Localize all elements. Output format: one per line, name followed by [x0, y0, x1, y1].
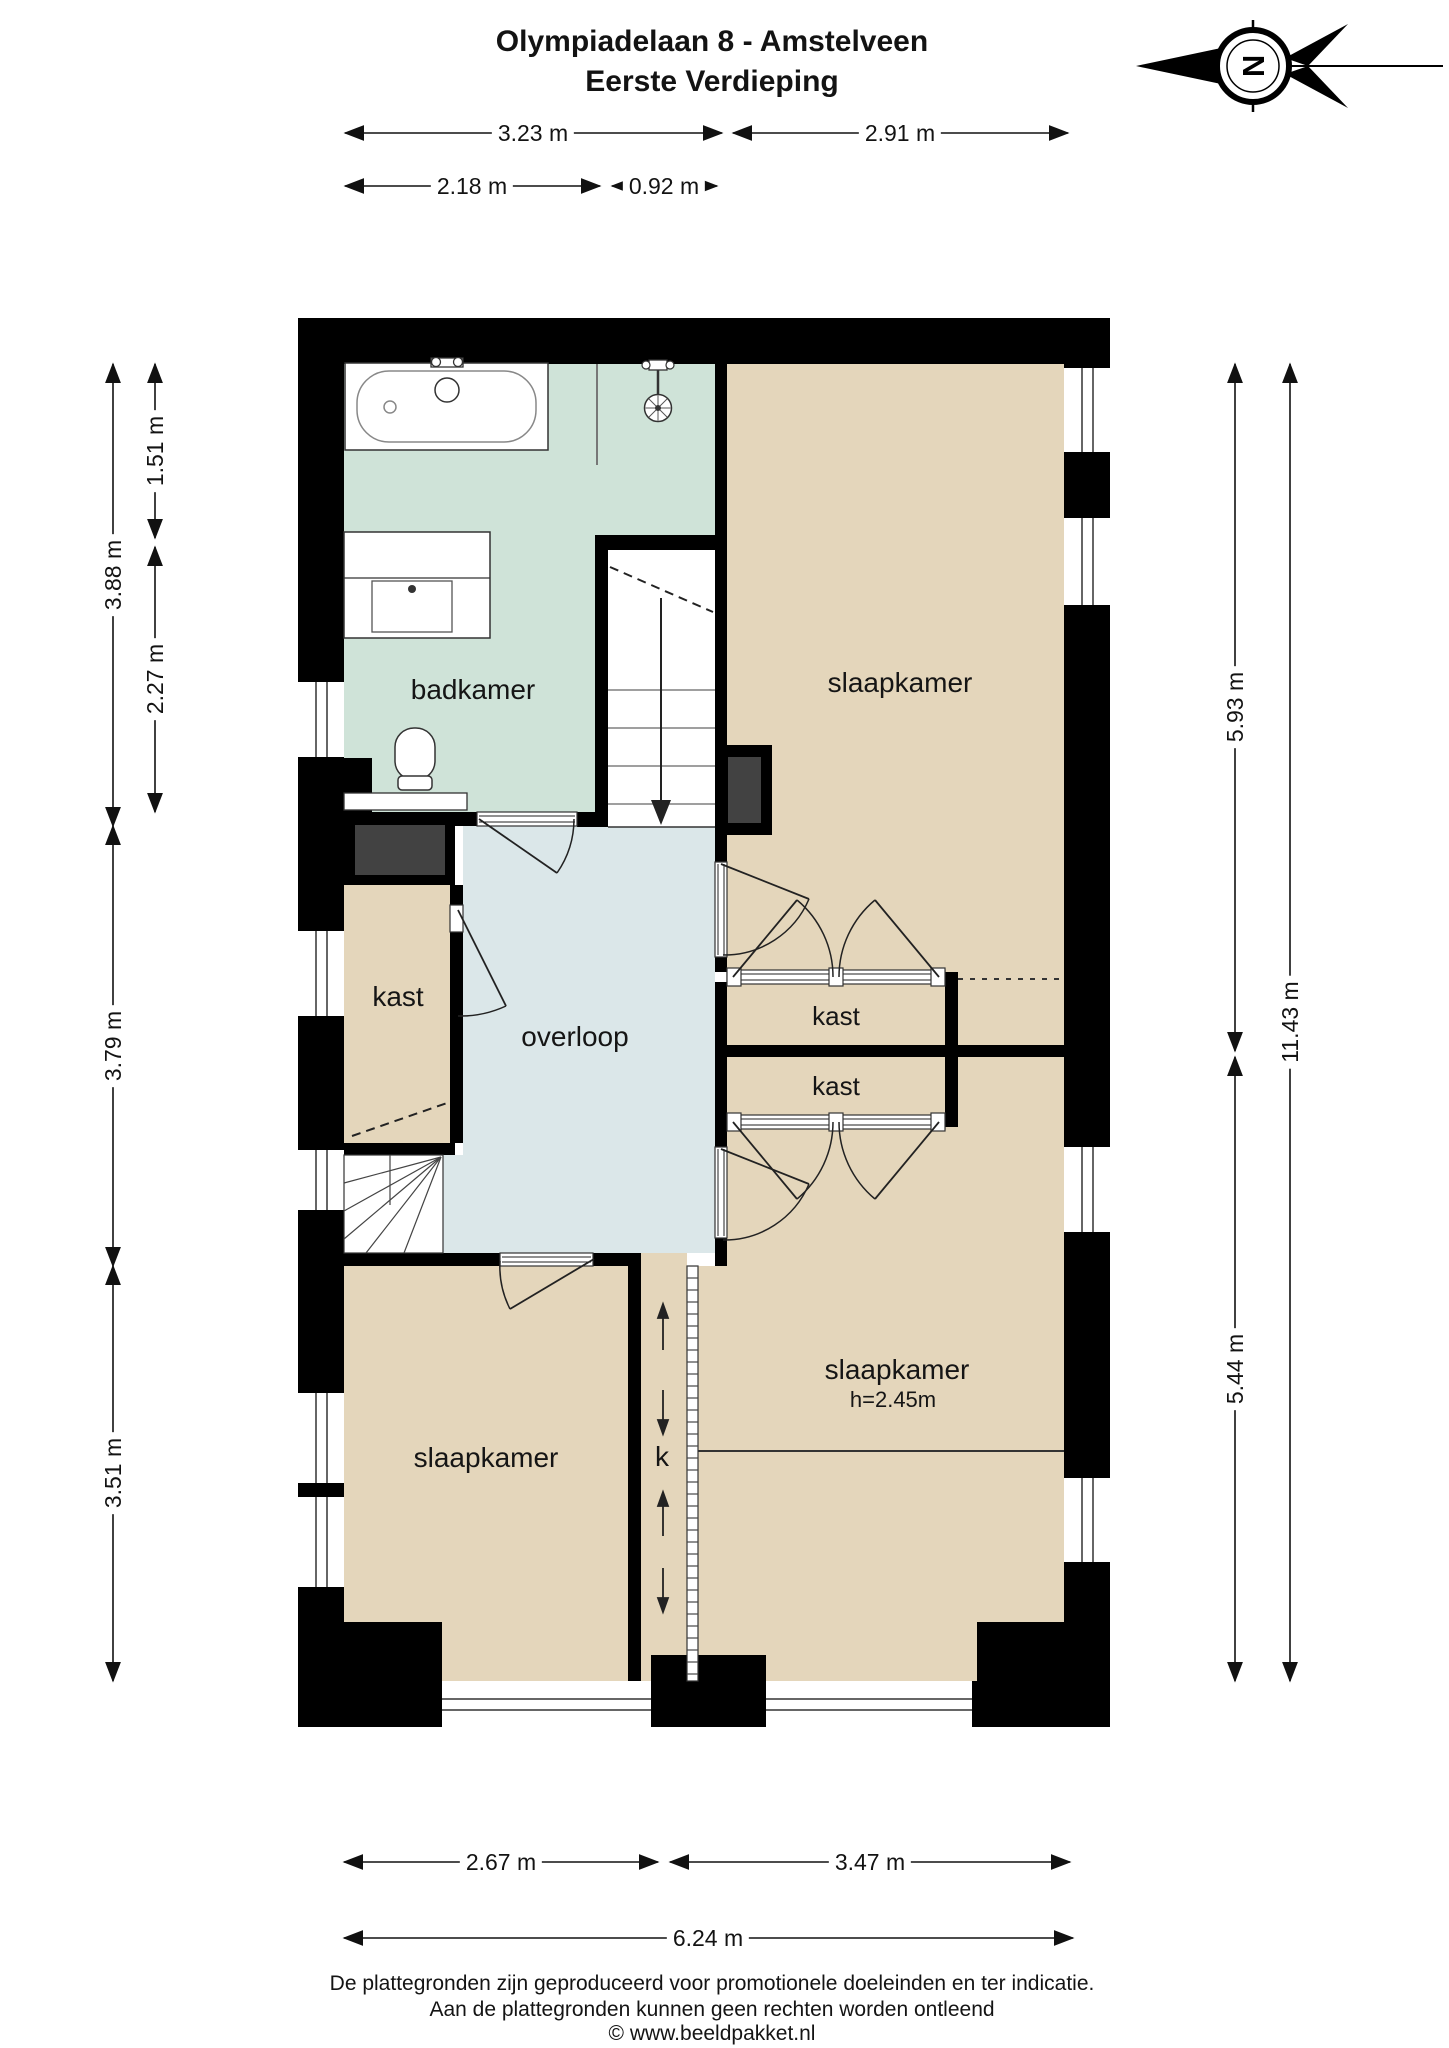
room-label-ceiling-height: h=2.45m — [850, 1389, 936, 1411]
bedroom-right-floor — [698, 1266, 1064, 1681]
room-label-slaapkamer-bottom-left: slaapkamer — [414, 1444, 559, 1472]
toilet — [395, 728, 435, 790]
window-left-3 — [298, 1150, 344, 1210]
floorplan-drawing — [0, 0, 1449, 2048]
room-label-slaapkamer-right: slaapkamer — [825, 1356, 970, 1384]
dim-left-outer-2: 3.79 m — [101, 1005, 125, 1087]
dim-left-outer-1: 3.88 m — [101, 534, 125, 616]
window-left-1 — [298, 682, 344, 757]
footer-copyright: © www.beeldpakket.nl — [609, 2022, 816, 2046]
window-left-4 — [298, 1393, 344, 1483]
page-subtitle: Eerste Verdieping — [585, 65, 838, 99]
dim-bottom-1: 2.67 m — [460, 1850, 542, 1874]
room-label-k-closet: k — [655, 1443, 669, 1471]
bedroom-bottom-left-floor — [344, 1266, 628, 1681]
room-label-badkamer: badkamer — [411, 676, 536, 704]
footer-disclaimer-2: Aan de plattegronden kunnen geen rechten… — [429, 1998, 994, 2022]
window-right-2 — [1064, 518, 1110, 605]
dim-bottom-total: 6.24 m — [667, 1926, 749, 1950]
dim-right-inner-1: 5.93 m — [1223, 666, 1247, 748]
room-label-kast-left: kast — [372, 983, 423, 1011]
dim-top-3: 2.18 m — [431, 174, 513, 198]
dim-left-inner-1: 1.51 m — [143, 410, 167, 492]
shaft-right — [728, 757, 761, 823]
room-label-slaapkamer-top: slaapkamer — [828, 669, 973, 697]
floorplan-page: Olympiadelaan 8 - Amstelveen Eerste Verd… — [0, 0, 1449, 2048]
window-right-1 — [1064, 368, 1110, 452]
window-bottom-1 — [442, 1681, 651, 1727]
dim-top-4: 0.92 m — [623, 174, 705, 198]
window-left-5 — [298, 1497, 344, 1587]
window-right-3 — [1064, 1147, 1110, 1232]
room-label-kast-mid-bottom: kast — [812, 1073, 860, 1099]
washbasin-counter — [344, 532, 490, 638]
dim-left-outer-3: 3.51 m — [101, 1432, 125, 1514]
dim-bottom-2: 3.47 m — [829, 1850, 911, 1874]
footer-disclaimer-1: De plattegronden zijn geproduceerd voor … — [330, 1972, 1095, 1996]
dim-top-1: 3.23 m — [492, 121, 574, 145]
window-bottom-2 — [766, 1681, 972, 1727]
staircase-main — [608, 550, 715, 827]
dim-top-2: 2.91 m — [859, 121, 941, 145]
window-right-4 — [1064, 1478, 1110, 1562]
window-left-2 — [298, 931, 344, 1016]
compass-letter: N — [1235, 55, 1271, 77]
room-label-overloop: overloop — [521, 1023, 628, 1051]
shaft-left — [355, 825, 445, 875]
radiator — [344, 793, 467, 810]
room-label-kast-mid-top: kast — [812, 1003, 860, 1029]
closet-left-floor — [344, 885, 450, 1143]
dim-right-outer-1: 11.43 m — [1278, 975, 1302, 1068]
bathtub — [345, 358, 548, 451]
dim-left-inner-2: 2.27 m — [143, 638, 167, 720]
bedroom-top-floor — [727, 364, 1064, 1045]
compass-rose — [1136, 20, 1443, 112]
dim-right-inner-2: 5.44 m — [1223, 1328, 1247, 1410]
page-title: Olympiadelaan 8 - Amstelveen — [496, 25, 928, 59]
